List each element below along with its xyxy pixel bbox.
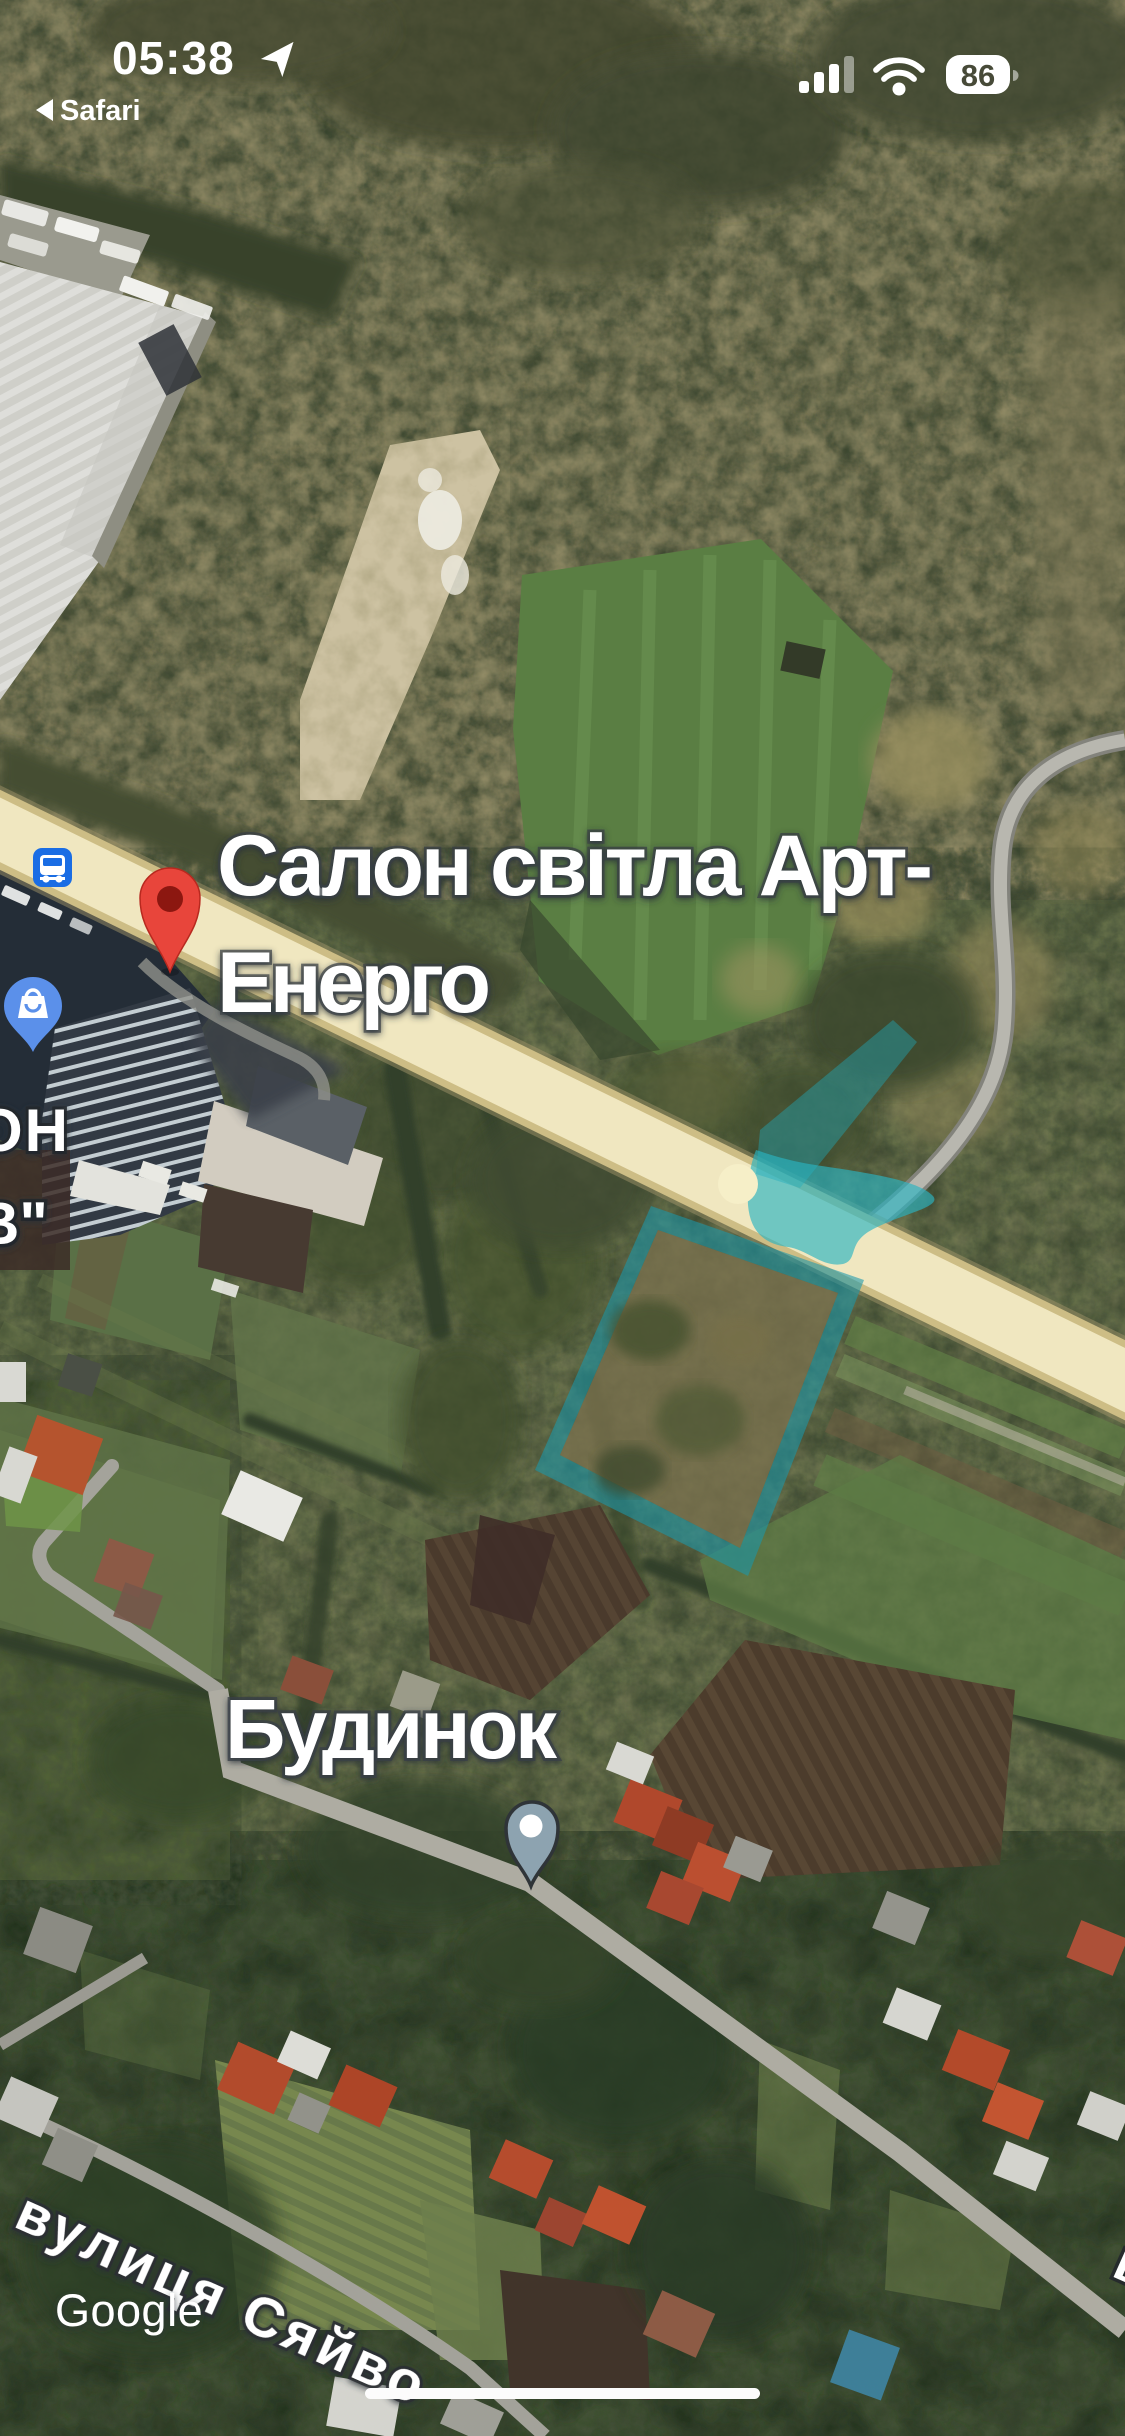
svg-text:86: 86 — [961, 58, 995, 93]
svg-text:ОН: ОН — [0, 1097, 70, 1164]
svg-text:Safari: Safari — [60, 95, 141, 127]
svg-text:Будинок: Будинок — [225, 1682, 558, 1776]
svg-text:Google: Google — [55, 2285, 203, 2336]
svg-text:Енерго: Енерго — [217, 935, 491, 1031]
svg-text:Салон світла Арт-: Салон світла Арт- — [217, 818, 933, 914]
svg-text:05:38: 05:38 — [112, 32, 235, 84]
svg-text:В": В" — [0, 1190, 48, 1257]
